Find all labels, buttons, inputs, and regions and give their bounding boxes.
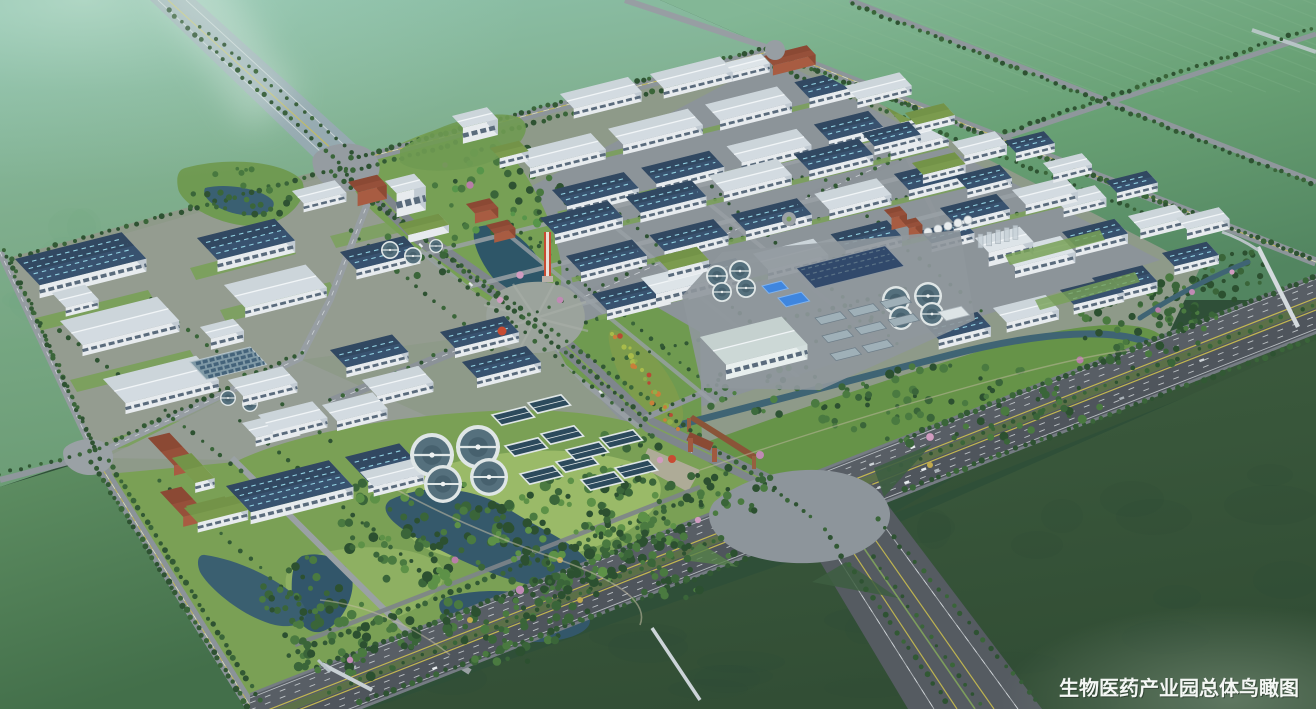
svg-text:生物医药产业园总体鸟瞰图: 生物医药产业园总体鸟瞰图 — [1059, 676, 1299, 700]
